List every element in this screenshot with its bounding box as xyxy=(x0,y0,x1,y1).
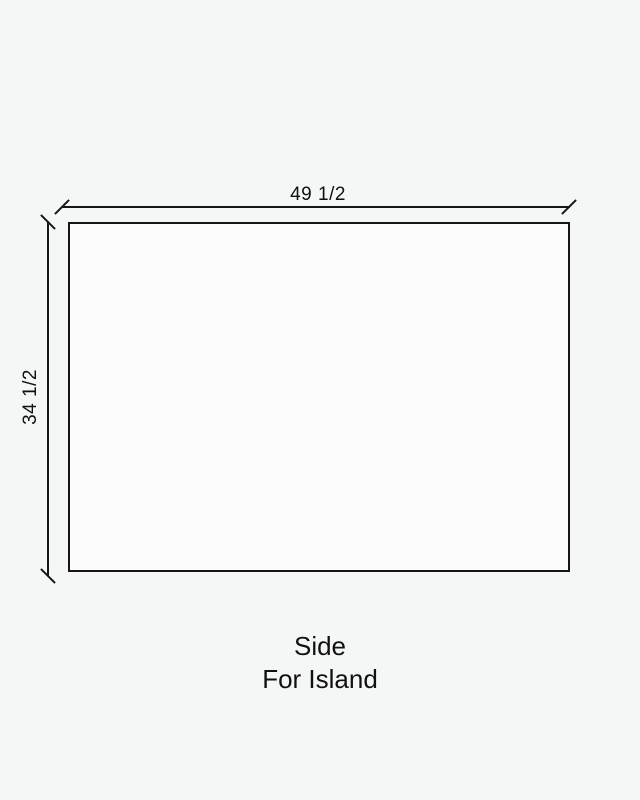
height-dimension-label: 34 1/2 xyxy=(20,369,42,425)
caption: Side For Island xyxy=(262,630,378,696)
width-dimension-label: 49 1/2 xyxy=(290,184,346,206)
width-dimension-line xyxy=(62,206,570,208)
caption-line-1: Side xyxy=(262,630,378,663)
dimension-drawing-canvas: 49 1/2 34 1/2 Side For Island xyxy=(0,0,640,800)
height-dimension-line xyxy=(47,222,49,576)
caption-line-2: For Island xyxy=(262,663,378,696)
panel-rectangle xyxy=(68,222,570,572)
